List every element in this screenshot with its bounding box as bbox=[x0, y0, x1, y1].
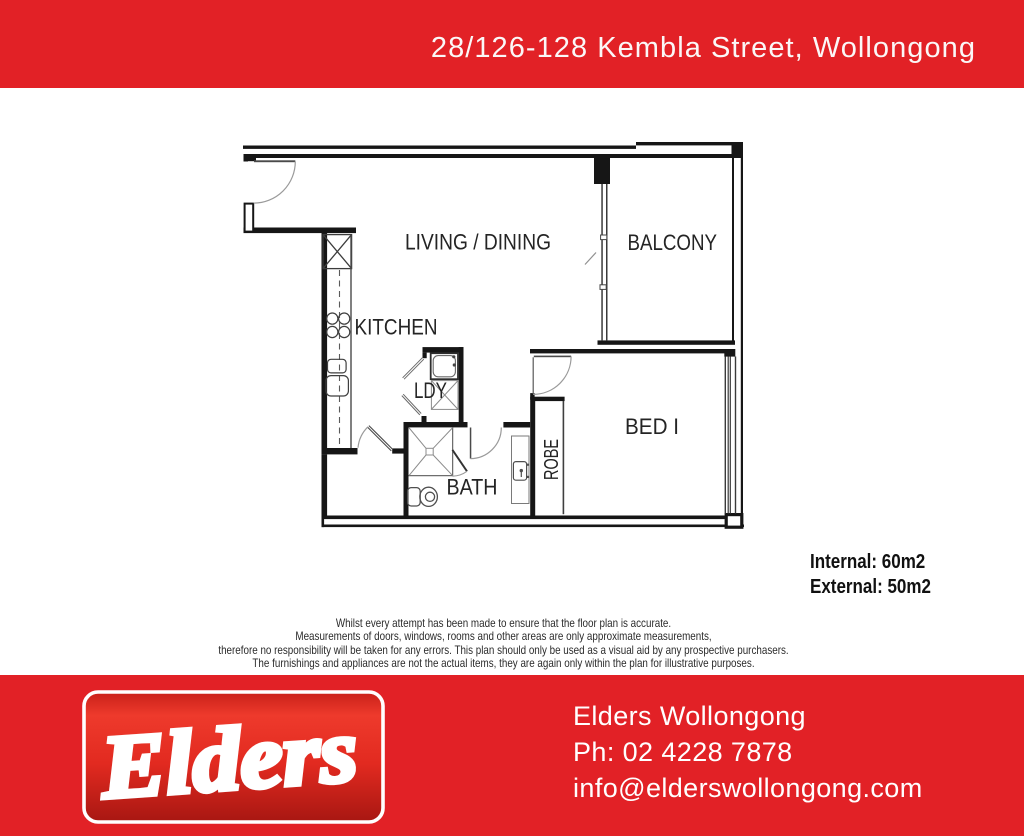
svg-text:BATH: BATH bbox=[447, 474, 498, 499]
svg-text:ROBE: ROBE bbox=[541, 439, 563, 480]
svg-text:Elders: Elders bbox=[97, 701, 360, 818]
svg-text:BED I: BED I bbox=[625, 414, 679, 439]
svg-text:LIVING / DINING: LIVING / DINING bbox=[405, 230, 551, 255]
svg-text:BALCONY: BALCONY bbox=[628, 230, 718, 255]
svg-text:LDY: LDY bbox=[414, 378, 447, 403]
svg-text:KITCHEN: KITCHEN bbox=[355, 315, 438, 340]
